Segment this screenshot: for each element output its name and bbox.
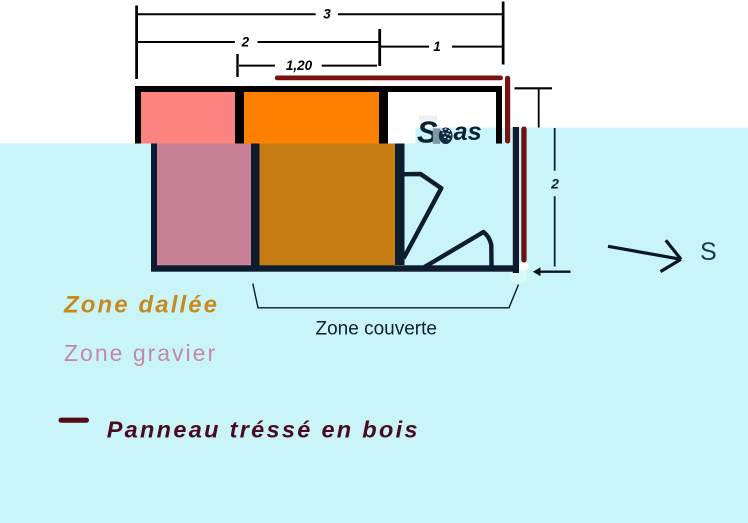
svg-text:1,20: 1,20 <box>286 58 313 73</box>
svg-text:Zone dallée: Zone dallée <box>63 292 219 319</box>
svg-text:Zone couverte: Zone couverte <box>316 319 437 340</box>
svg-text:3: 3 <box>323 6 331 21</box>
svg-text:2: 2 <box>550 176 559 192</box>
svg-text:S: S <box>700 238 717 266</box>
svg-text:2: 2 <box>241 35 250 50</box>
svg-text:1: 1 <box>433 39 441 54</box>
svg-text:Panneau tréssé en bois: Panneau tréssé en bois <box>107 417 420 443</box>
svg-text:Zone gravier: Zone gravier <box>64 340 217 366</box>
svg-text:as: as <box>454 118 482 146</box>
